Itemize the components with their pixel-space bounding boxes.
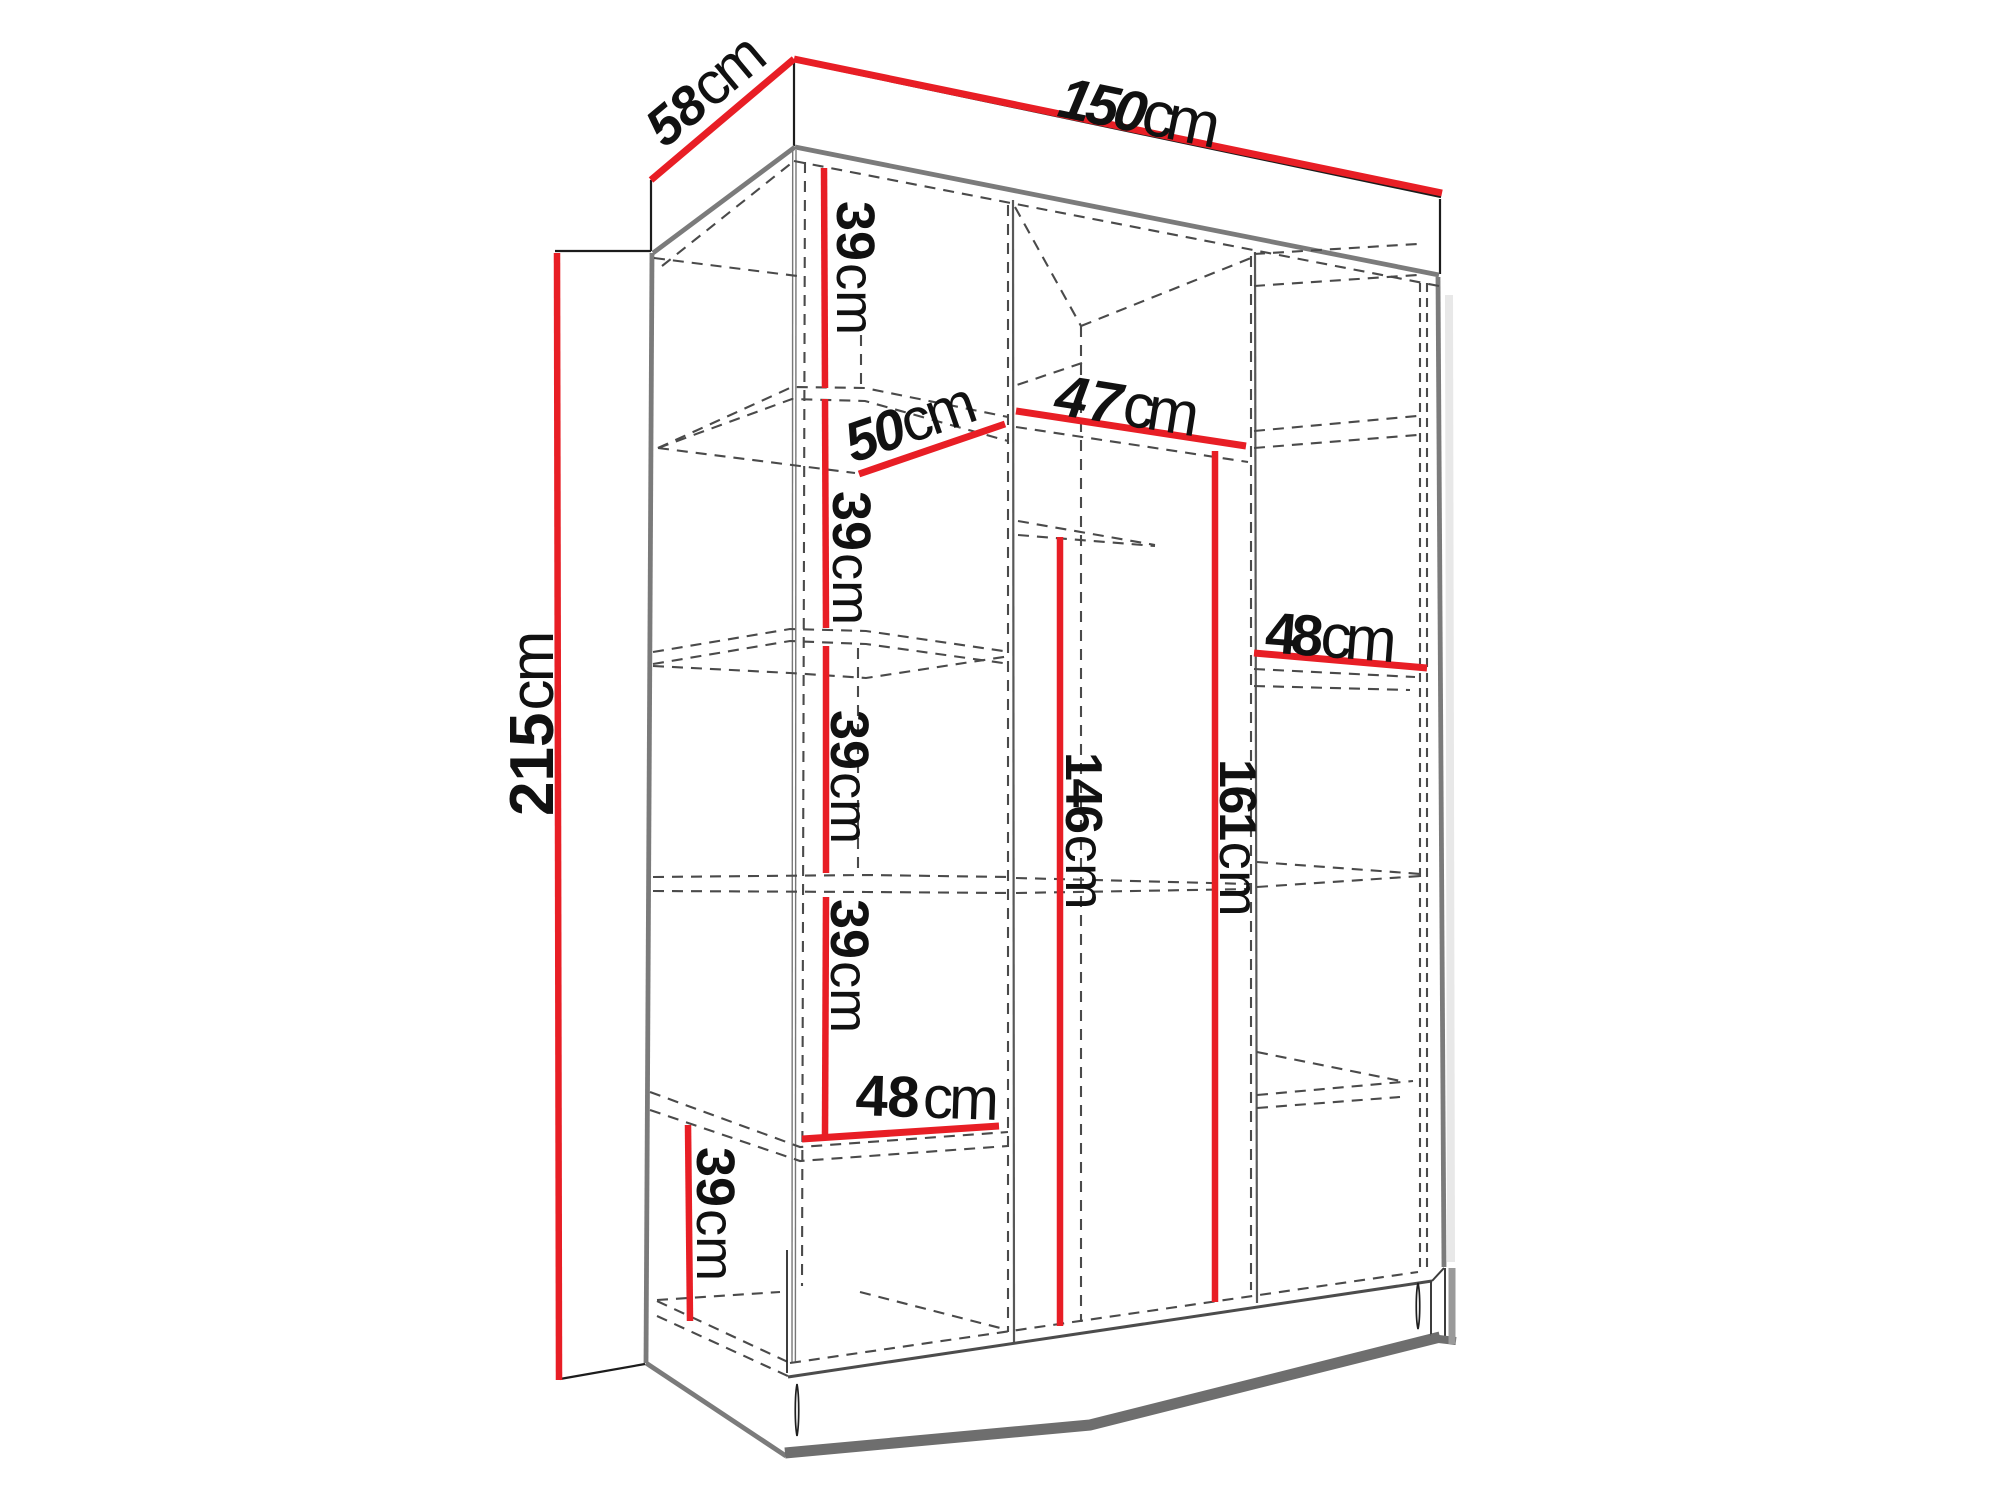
svg-text:48cm: 48cm	[855, 1061, 1001, 1133]
svg-text:39cm: 39cm	[821, 491, 881, 625]
svg-text:161cm: 161cm	[1208, 759, 1271, 917]
svg-text:39cm: 39cm	[825, 201, 885, 335]
svg-text:39cm: 39cm	[685, 1147, 745, 1281]
svg-text:146cm: 146cm	[1054, 752, 1117, 910]
svg-text:39cm: 39cm	[819, 710, 879, 844]
svg-text:39cm: 39cm	[819, 899, 879, 1033]
svg-text:48cm: 48cm	[1263, 597, 1399, 676]
svg-text:215cm: 215cm	[498, 631, 567, 816]
